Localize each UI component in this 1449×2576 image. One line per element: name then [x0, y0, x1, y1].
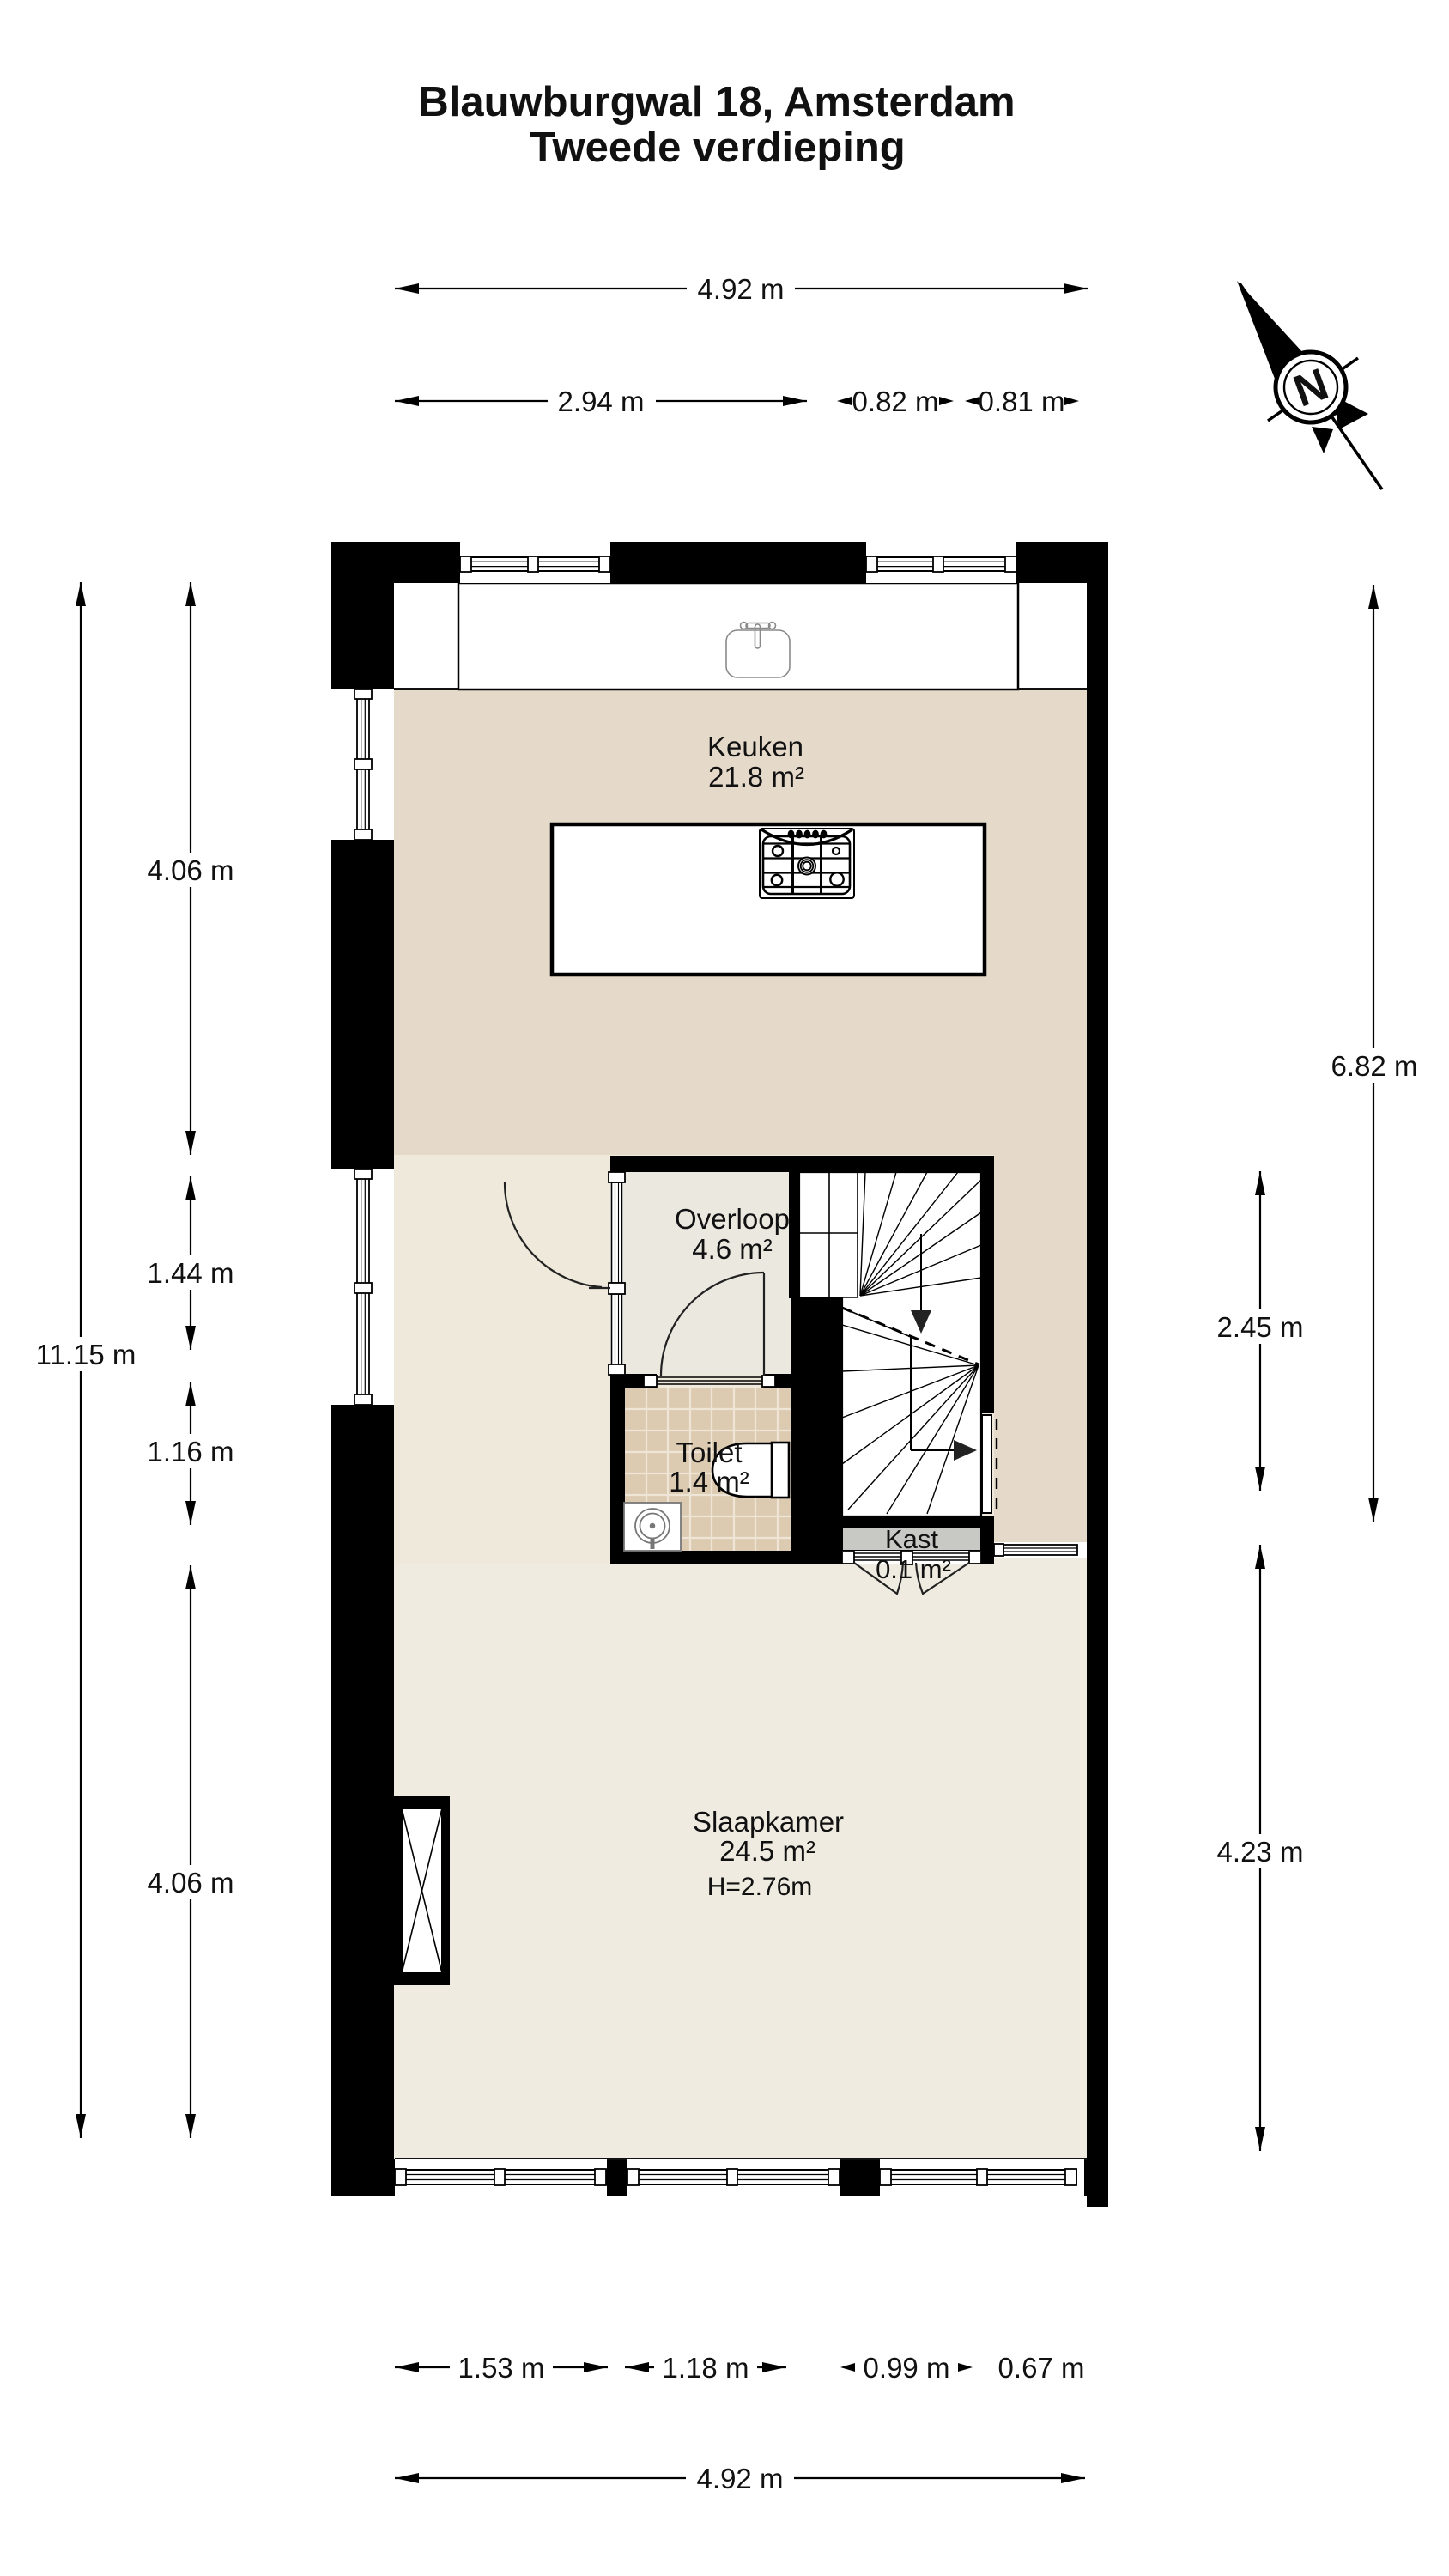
svg-text:2.45 m: 2.45 m: [1217, 1311, 1304, 1343]
svg-text:0.1 m²: 0.1 m²: [876, 1554, 951, 1584]
svg-text:4.6 m²: 4.6 m²: [692, 1233, 773, 1265]
svg-text:4.23 m: 4.23 m: [1217, 1836, 1304, 1868]
svg-text:Slaapkamer: Slaapkamer: [693, 1806, 844, 1838]
svg-text:1.4 m²: 1.4 m²: [669, 1466, 749, 1498]
svg-text:Blauwburgwal 18, Amsterdam: Blauwburgwal 18, Amsterdam: [418, 79, 1015, 125]
svg-text:0.82 m: 0.82 m: [852, 386, 939, 417]
svg-text:1.16 m: 1.16 m: [148, 1436, 234, 1467]
svg-text:Overloop: Overloop: [675, 1203, 790, 1235]
svg-text:1.53 m: 1.53 m: [458, 2352, 545, 2384]
svg-text:0.99 m: 0.99 m: [864, 2352, 950, 2384]
svg-text:1.18 m: 1.18 m: [663, 2352, 749, 2384]
svg-text:4.06 m: 4.06 m: [148, 1867, 234, 1899]
svg-text:11.15 m: 11.15 m: [36, 1339, 136, 1370]
svg-text:Kast: Kast: [885, 1524, 938, 1554]
svg-text:H=2.76m: H=2.76m: [707, 1873, 813, 1901]
svg-text:Toilet: Toilet: [676, 1437, 742, 1468]
svg-text:4.92 m: 4.92 m: [697, 2463, 784, 2494]
svg-text:Tweede verdieping: Tweede verdieping: [530, 125, 905, 171]
svg-text:Keuken: Keuken: [707, 731, 803, 762]
svg-text:24.5 m²: 24.5 m²: [719, 1835, 815, 1867]
svg-text:4.06 m: 4.06 m: [148, 854, 234, 886]
svg-text:4.92 m: 4.92 m: [698, 273, 785, 305]
svg-text:0.67 m: 0.67 m: [998, 2352, 1085, 2384]
svg-text:2.94 m: 2.94 m: [558, 386, 645, 417]
svg-text:21.8 m²: 21.8 m²: [708, 761, 804, 793]
svg-text:0.81 m: 0.81 m: [979, 386, 1065, 417]
svg-text:6.82 m: 6.82 m: [1331, 1050, 1418, 1082]
svg-text:1.44 m: 1.44 m: [148, 1257, 234, 1289]
